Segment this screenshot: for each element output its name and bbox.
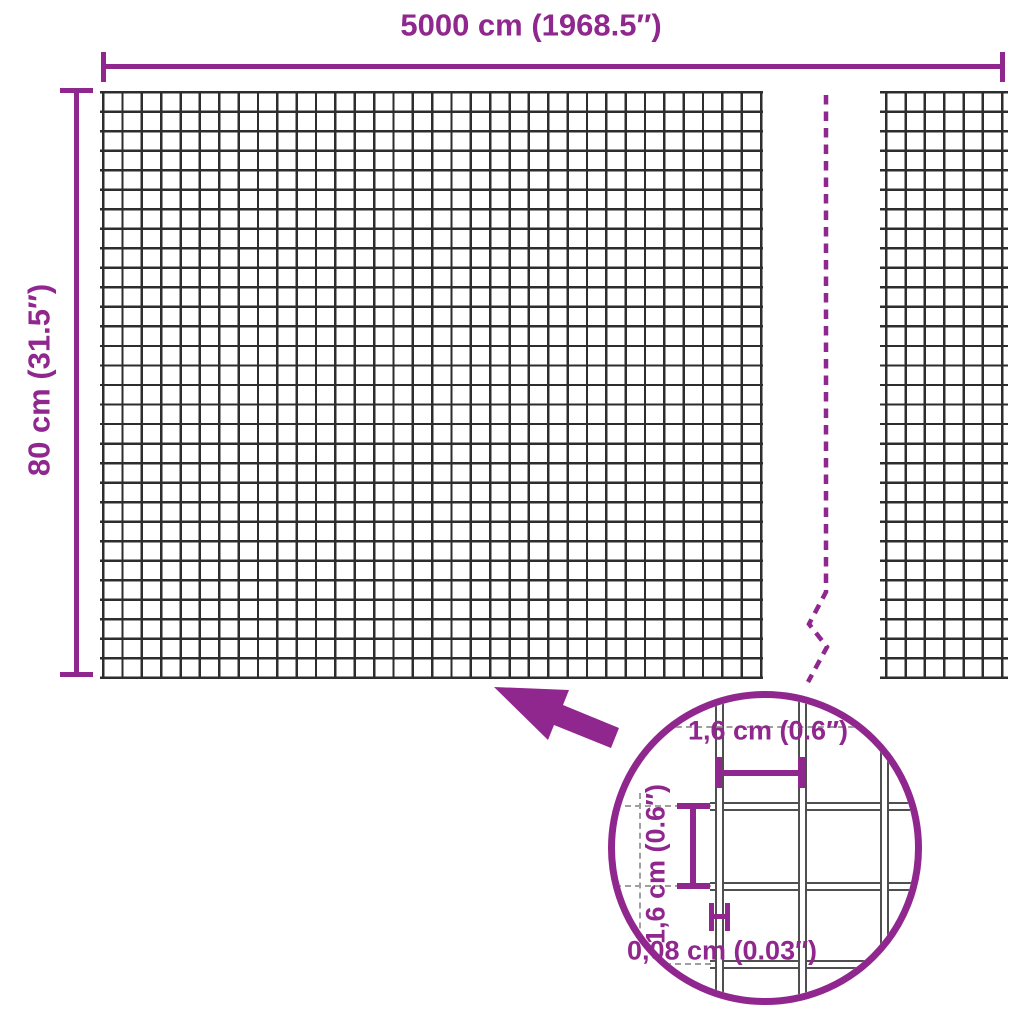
detail-wire-thickness-label: 0,08 cm (0.03″) <box>627 938 817 965</box>
detail-mesh-width-label: 1,6 cm (0.6″) <box>688 718 848 745</box>
detail-wire-thickness-bar <box>711 914 728 919</box>
zoom-arrow-icon <box>494 687 619 748</box>
detail-vertical-wire <box>880 698 889 998</box>
detail-width-bracket-bar <box>715 770 805 776</box>
panel-break-line-icon <box>808 95 827 682</box>
detail-mesh-height-label: 1,6 cm (0.6″) <box>643 784 670 944</box>
wire-mesh-dimension-diagram: 5000 cm (1968.5″) 80 cm (31.5″) <box>0 0 1024 1024</box>
detail-height-bracket-bar <box>690 803 696 889</box>
